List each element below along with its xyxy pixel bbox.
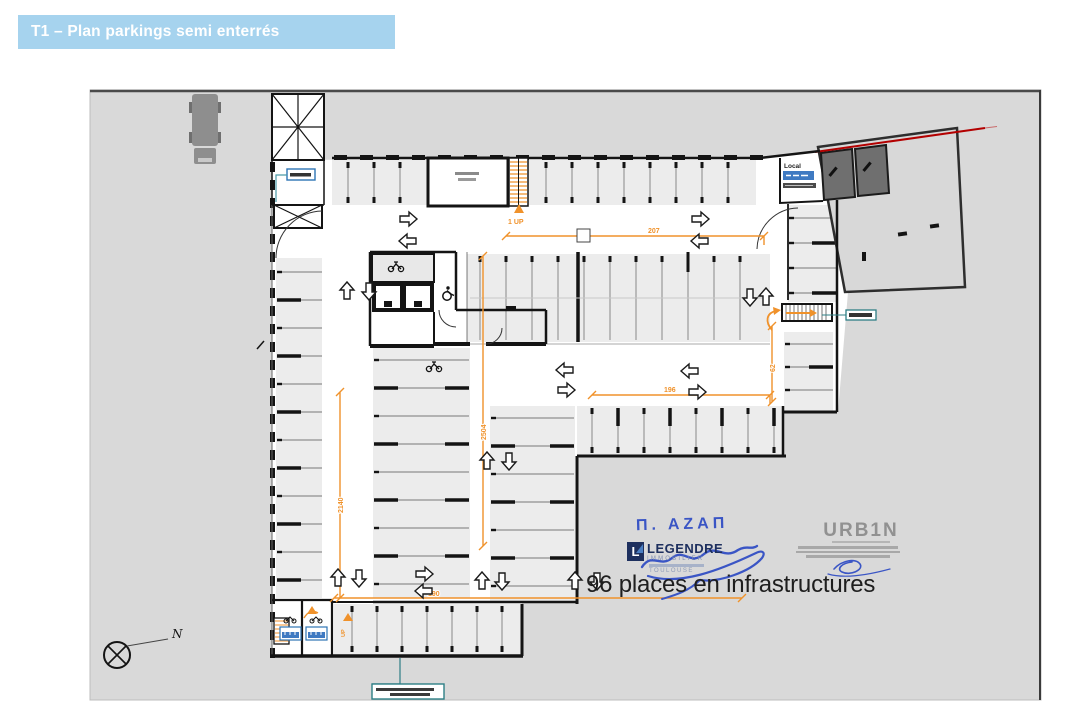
urbin-logo: URB1N [796,521,926,560]
urbin-address-line-3 [806,555,890,558]
urbin-address-line-2 [796,551,900,554]
dim-right: 62 [770,364,777,372]
legendre-name: LEGENDRE [647,542,723,555]
dim-top: 207 [648,228,660,235]
up-label-bottom: UP [341,629,347,637]
slide: T1 – Plan parkings semi enterrés [0,0,1074,711]
dim-mid: 196 [664,387,676,394]
dark-room-2 [855,145,889,196]
legendre-city: TOULOUSE [649,568,723,574]
legendre-sub: IMMOBILIER [647,556,723,562]
dimension-square-marker [577,229,590,242]
urbin-address-line-1 [798,546,898,549]
floor-plan: 1 UP Loc [0,0,1074,711]
places-caption: 96 places en infrastructures [586,571,875,599]
storage-room [428,158,508,206]
stairs-up-label: 1 UP [508,219,524,226]
signature-name: Π. ΑΖΑΠ [636,515,729,535]
dark-room-1 [821,149,855,200]
urbin-name: URB1N [796,521,926,540]
dim-center: 2504 [481,424,488,440]
local-label: Local [784,163,801,170]
dim-left: 2140 [338,497,345,513]
urbin-tagline [832,541,890,543]
legendre-address-line [649,564,704,567]
north-label: N [171,627,183,641]
legendre-mark-icon: L [627,542,644,561]
legendre-logo: L LEGENDRE IMMOBILIER TOULOUSE [627,542,757,574]
